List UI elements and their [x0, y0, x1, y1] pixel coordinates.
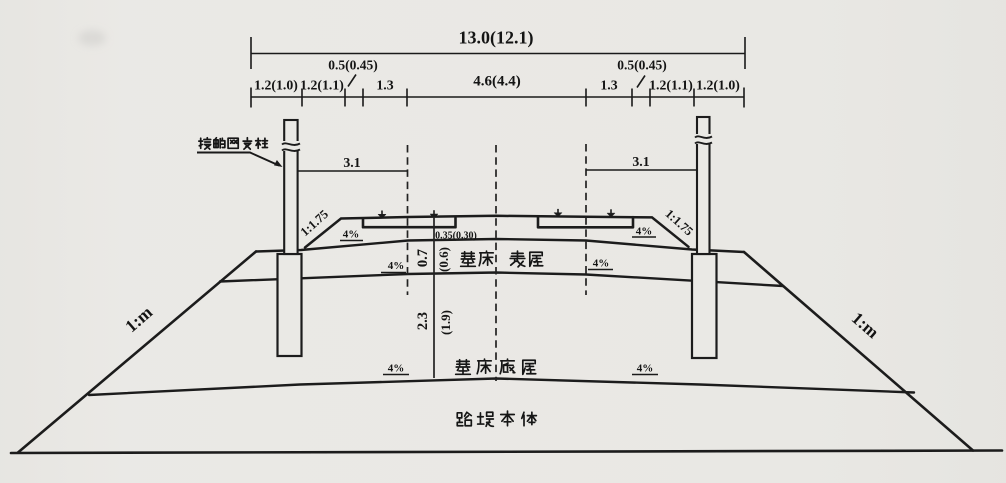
svg-text:4.6(4.4): 4.6(4.4) [473, 74, 521, 90]
svg-text:3.1: 3.1 [343, 155, 360, 170]
svg-text:0.5(0.45): 0.5(0.45) [617, 58, 667, 73]
svg-text:4%: 4% [636, 226, 653, 238]
svg-text:2.3: 2.3 [415, 312, 431, 330]
svg-text:3.1: 3.1 [632, 154, 649, 169]
svg-text:1.2(1.1): 1.2(1.1) [300, 78, 344, 94]
svg-text:13.0(12.1): 13.0(12.1) [459, 28, 534, 49]
svg-text:4%: 4% [388, 260, 405, 272]
svg-text:1.2(1.0): 1.2(1.0) [696, 78, 740, 94]
svg-text:0.5(0.45): 0.5(0.45) [328, 58, 378, 73]
svg-text:1.3: 1.3 [600, 78, 617, 93]
svg-text:4%: 4% [343, 229, 360, 241]
svg-text:0.35(0.30): 0.35(0.30) [435, 231, 477, 242]
svg-text:1.3: 1.3 [376, 78, 393, 93]
svg-text:4%: 4% [637, 363, 654, 375]
svg-text:4%: 4% [593, 258, 610, 270]
svg-text:(1.9): (1.9) [438, 310, 453, 335]
svg-text:1.2(1.1): 1.2(1.1) [649, 78, 693, 94]
svg-text:1.2(1.0): 1.2(1.0) [254, 78, 298, 94]
svg-text:0.7: 0.7 [415, 249, 431, 267]
svg-text:4%: 4% [388, 363, 405, 375]
svg-text:(0.6): (0.6) [436, 247, 451, 272]
